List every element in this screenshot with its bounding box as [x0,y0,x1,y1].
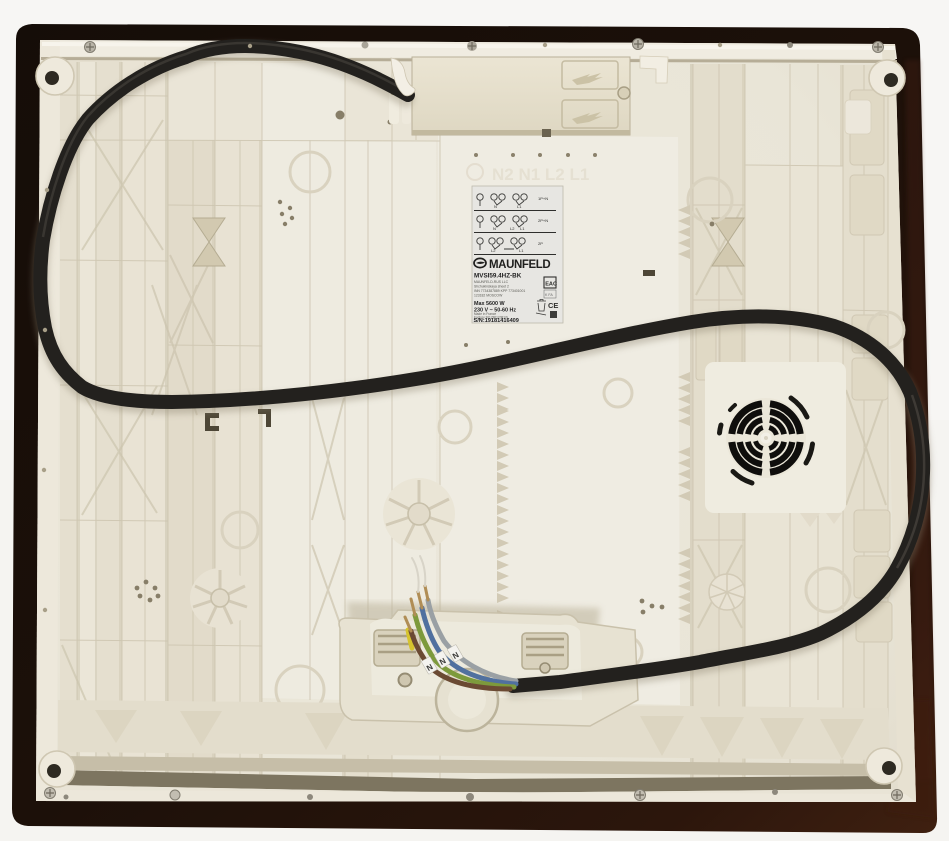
svg-text:L2: L2 [491,248,496,253]
svg-text:1P+N: 1P+N [538,196,548,201]
svg-text:2P+N: 2P+N [538,218,548,223]
svg-text:L1: L1 [517,204,522,209]
svg-text:N: N [493,226,496,231]
svg-text:Shchukinskaya sheet 2: Shchukinskaya sheet 2 [474,285,509,289]
svg-text:123182 MOSCOW: 123182 MOSCOW [474,294,503,298]
svg-text:K FA: K FA [545,293,553,297]
svg-text:INN 7734387889 KPP 773401001: INN 7734387889 KPP 773401001 [474,289,525,293]
svg-text:MAUNFELD: MAUNFELD [489,259,550,271]
svg-text:L1: L1 [519,248,524,253]
svg-text:EAC: EAC [545,282,557,288]
svg-text:S/N:19181416409: S/N:19181416409 [474,318,519,324]
svg-text:2P: 2P [538,241,543,246]
svg-text:N: N [494,204,497,209]
svg-text:MAUNFELD-RUS LLC: MAUNFELD-RUS LLC [474,280,509,284]
svg-text:Max 5600 W: Max 5600 W [474,301,505,307]
svg-text:MVSI59.4HZ-BK: MVSI59.4HZ-BK [474,273,522,280]
svg-text:CE: CE [548,301,558,310]
svg-text:N2 N1 L2 L1: N2 N1 L2 L1 [492,165,589,184]
svg-text:L1: L1 [520,226,525,231]
svg-text:L2: L2 [510,226,515,231]
